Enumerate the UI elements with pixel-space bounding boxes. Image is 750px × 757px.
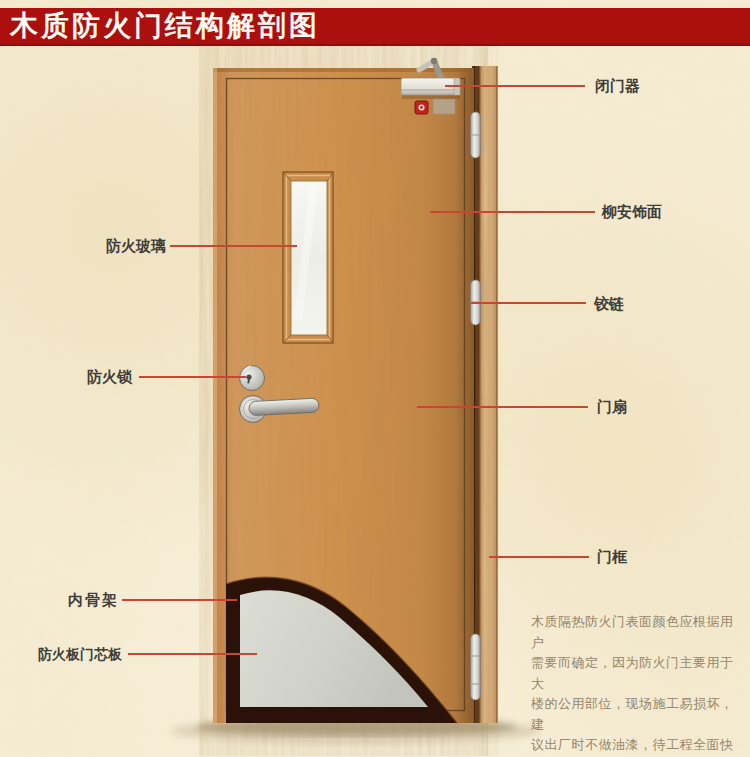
page-title-banner: 木质防火门结构解剖图 <box>0 8 750 46</box>
hinge-bottom <box>471 634 481 700</box>
description-text: 木质隔热防火门表面颜色应根据用户 需要而确定，因为防火门主要用于大 楼的公用部位… <box>531 612 736 757</box>
closer-mount-plate <box>433 99 455 114</box>
callout-core-board: 防火板门芯板 <box>38 646 122 664</box>
brand-badge <box>415 101 428 114</box>
callout-door-leaf: 门扇 <box>597 398 627 417</box>
fire-glass-window <box>283 172 333 343</box>
door-frame <box>479 66 498 723</box>
callout-inner-skeleton: 内骨架 <box>68 591 119 610</box>
page-title: 木质防火门结构解剖图 <box>0 8 750 44</box>
page: 木质防火门结构解剖图 防火玻璃 防火锁 内骨架 防火板门芯板 闭门器 柳安饰面 … <box>0 0 750 757</box>
callout-veneer: 柳安饰面 <box>602 203 662 222</box>
callout-fire-glass: 防火玻璃 <box>106 237 166 256</box>
callout-door-closer: 闭门器 <box>595 77 640 96</box>
callout-fire-lock: 防火锁 <box>87 368 132 387</box>
callout-hinge: 铰链 <box>594 295 624 314</box>
callout-door-frame: 门框 <box>597 548 627 567</box>
hinge-top <box>471 112 481 158</box>
